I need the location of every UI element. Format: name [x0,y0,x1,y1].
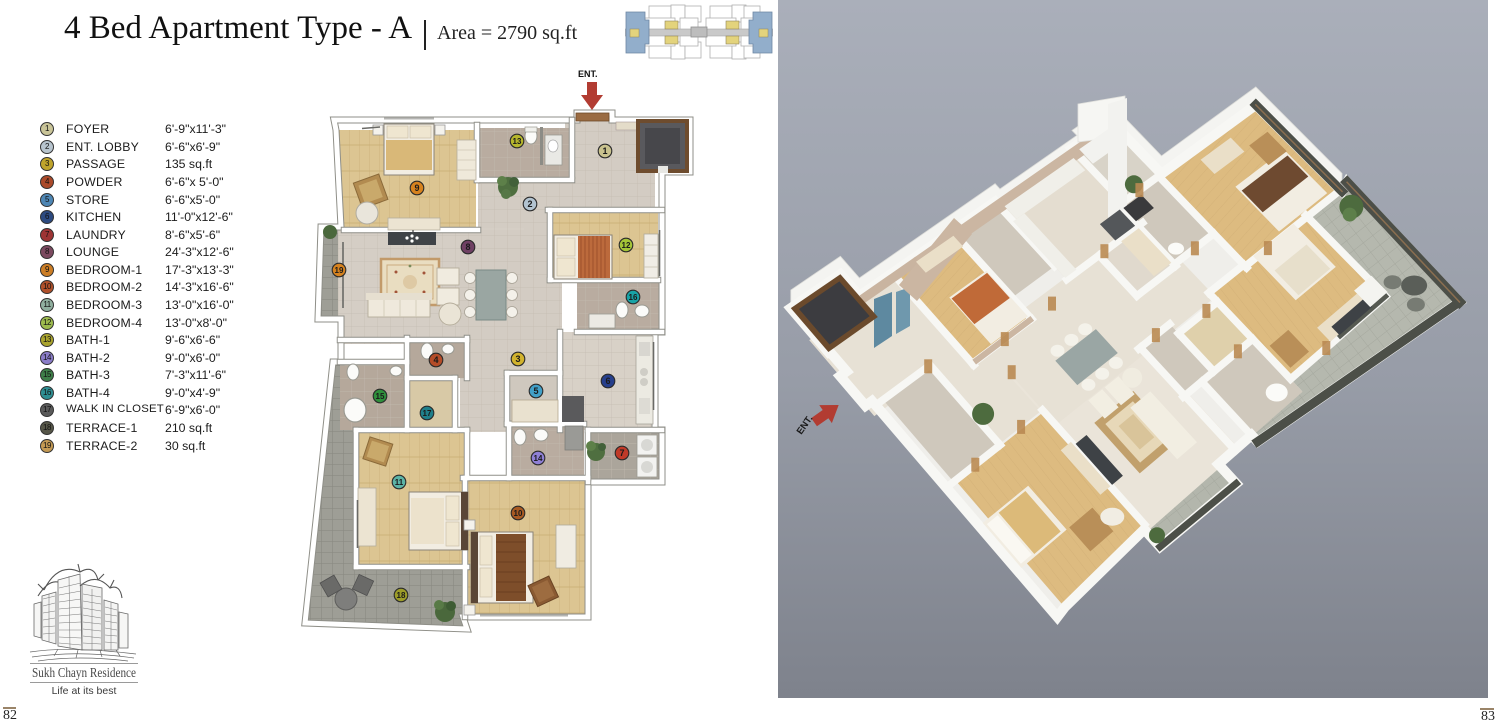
svg-text:2: 2 [527,199,532,209]
svg-text:13: 13 [513,137,522,146]
svg-text:11: 11 [395,478,404,487]
svg-text:15: 15 [376,392,385,401]
svg-text:14: 14 [534,454,543,463]
svg-text:5: 5 [533,386,538,396]
svg-text:10: 10 [514,509,523,518]
svg-text:Sukh Chayn Residence: Sukh Chayn Residence [32,665,136,680]
svg-text:9: 9 [414,183,419,193]
svg-text:Life at its best: Life at its best [52,685,117,697]
svg-text:19: 19 [335,266,344,275]
svg-text:12: 12 [622,241,631,250]
svg-text:1: 1 [602,146,607,156]
svg-text:18: 18 [397,591,406,600]
svg-text:7: 7 [619,448,624,458]
svg-text:8: 8 [465,242,470,252]
svg-text:6: 6 [605,376,610,386]
svg-text:17: 17 [423,409,432,418]
svg-text:4: 4 [433,355,438,365]
svg-text:3: 3 [515,354,520,364]
svg-text:16: 16 [629,293,638,302]
